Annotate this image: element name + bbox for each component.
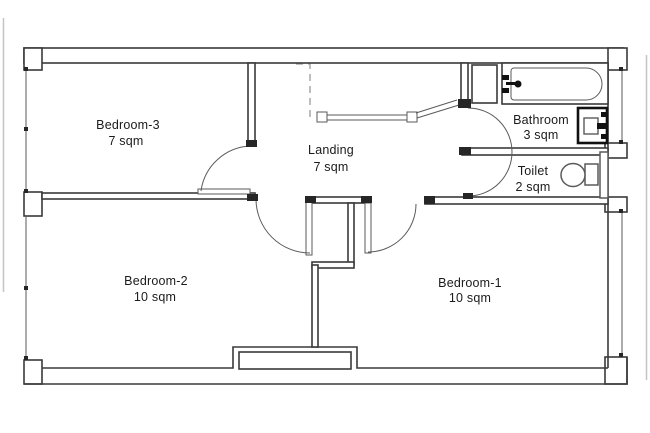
- wall-toilet-bedroom1: [425, 197, 608, 204]
- stair-railing-diagonal-2: [417, 105, 459, 118]
- wc-tank: [585, 164, 598, 185]
- washbasin-fixture: [578, 108, 607, 143]
- window-tick-4: [619, 67, 623, 71]
- bathtub-inner: [511, 68, 602, 100]
- stair-railing-post-left: [317, 112, 327, 122]
- door-arc-bedroom2: [256, 199, 310, 253]
- door-leaf-bedroom3: [198, 189, 250, 194]
- cupboard: [472, 65, 497, 103]
- wall-bedroom3-landing: [248, 63, 255, 146]
- room-labels: Bedroom-3 7 sqm Landing 7 sqm Bathroom 3…: [96, 113, 569, 305]
- window-tick-2: [24, 189, 28, 193]
- cap-toilet-doorpost: [463, 193, 473, 199]
- floor-plan-drawing: Bedroom-3 7 sqm Landing 7 sqm Bathroom 3…: [0, 0, 650, 433]
- bath-spout: [506, 82, 515, 85]
- wall-bathroom-west-stub: [461, 63, 468, 103]
- stair-railing-post-right: [407, 112, 417, 122]
- left-pier-top: [24, 48, 42, 70]
- window-tick-5: [619, 140, 623, 144]
- wc-bowl: [561, 164, 585, 187]
- cap-shortwall-left: [305, 196, 316, 203]
- bedroom1-name: Bedroom-1: [438, 276, 502, 290]
- bathroom-name: Bathroom: [513, 113, 569, 127]
- toilet-area: 2 sqm: [515, 180, 550, 194]
- door-arc-bedroom3: [201, 146, 251, 191]
- cap-shortwall-right: [361, 196, 372, 203]
- bathtub-fixture: [502, 63, 608, 104]
- toilet-pan-fixture: [561, 152, 608, 198]
- window-marker-b3: [24, 127, 28, 131]
- stair-void-path: [296, 64, 310, 117]
- door-leaf-bedroom2: [306, 202, 312, 255]
- cistern-fixture: [600, 152, 608, 198]
- cap-bathwall-left: [459, 147, 471, 155]
- bedroom2-area: 10 sqm: [134, 290, 176, 304]
- top-wall: [24, 48, 623, 63]
- left-pier-middle: [24, 192, 42, 216]
- basin-bowl: [584, 118, 598, 134]
- cap-bedroom2-doorpost: [247, 194, 258, 201]
- bathroom-area: 3 sqm: [523, 128, 558, 142]
- bath-tap-1: [502, 75, 509, 80]
- stair-railing-diagonal-1: [416, 100, 457, 113]
- cap-bathroom-doorpost: [458, 99, 471, 108]
- window-tick-3: [24, 356, 28, 360]
- landing-name: Landing: [308, 143, 354, 157]
- stair-railing-rail: [326, 115, 407, 120]
- basin-tap-2: [601, 134, 606, 139]
- bedroom3-area: 7 sqm: [108, 134, 143, 148]
- right-pier-top: [608, 48, 627, 70]
- cap-bedroom3-doorpost: [246, 140, 257, 147]
- wall-bedrooms-divider-lower: [312, 265, 318, 347]
- bedroom2-name: Bedroom-2: [124, 274, 188, 288]
- floor-plan: Bedroom-3 7 sqm Landing 7 sqm Bathroom 3…: [0, 0, 650, 433]
- bath-tap-2: [502, 88, 509, 93]
- chimney-breast: [239, 352, 351, 369]
- window-tick-6: [619, 209, 623, 213]
- window-marker-b2: [24, 286, 28, 290]
- basin-tap-1: [601, 112, 606, 117]
- window-tick-7: [619, 353, 623, 357]
- left-pier-bottom: [24, 360, 42, 384]
- toilet-name: Toilet: [518, 164, 549, 178]
- basin-faucet: [597, 123, 606, 129]
- wall-bathroom-toilet: [462, 148, 608, 155]
- door-leaf-bedroom1: [365, 203, 371, 253]
- cap-toiletwall-left: [424, 196, 435, 204]
- bedroom3-name: Bedroom-3: [96, 118, 160, 132]
- window-tick-1: [24, 67, 28, 71]
- landing-area: 7 sqm: [313, 160, 348, 174]
- door-arc-bedroom1: [368, 204, 416, 252]
- bedroom1-area: 10 sqm: [449, 291, 491, 305]
- wall-caps: [24, 67, 623, 360]
- wall-bedrooms-divider-upper: [348, 203, 354, 265]
- wall-landing-bedroom1: [308, 197, 367, 203]
- stair-void-dashed-line: [296, 64, 310, 117]
- bath-drain: [515, 81, 522, 88]
